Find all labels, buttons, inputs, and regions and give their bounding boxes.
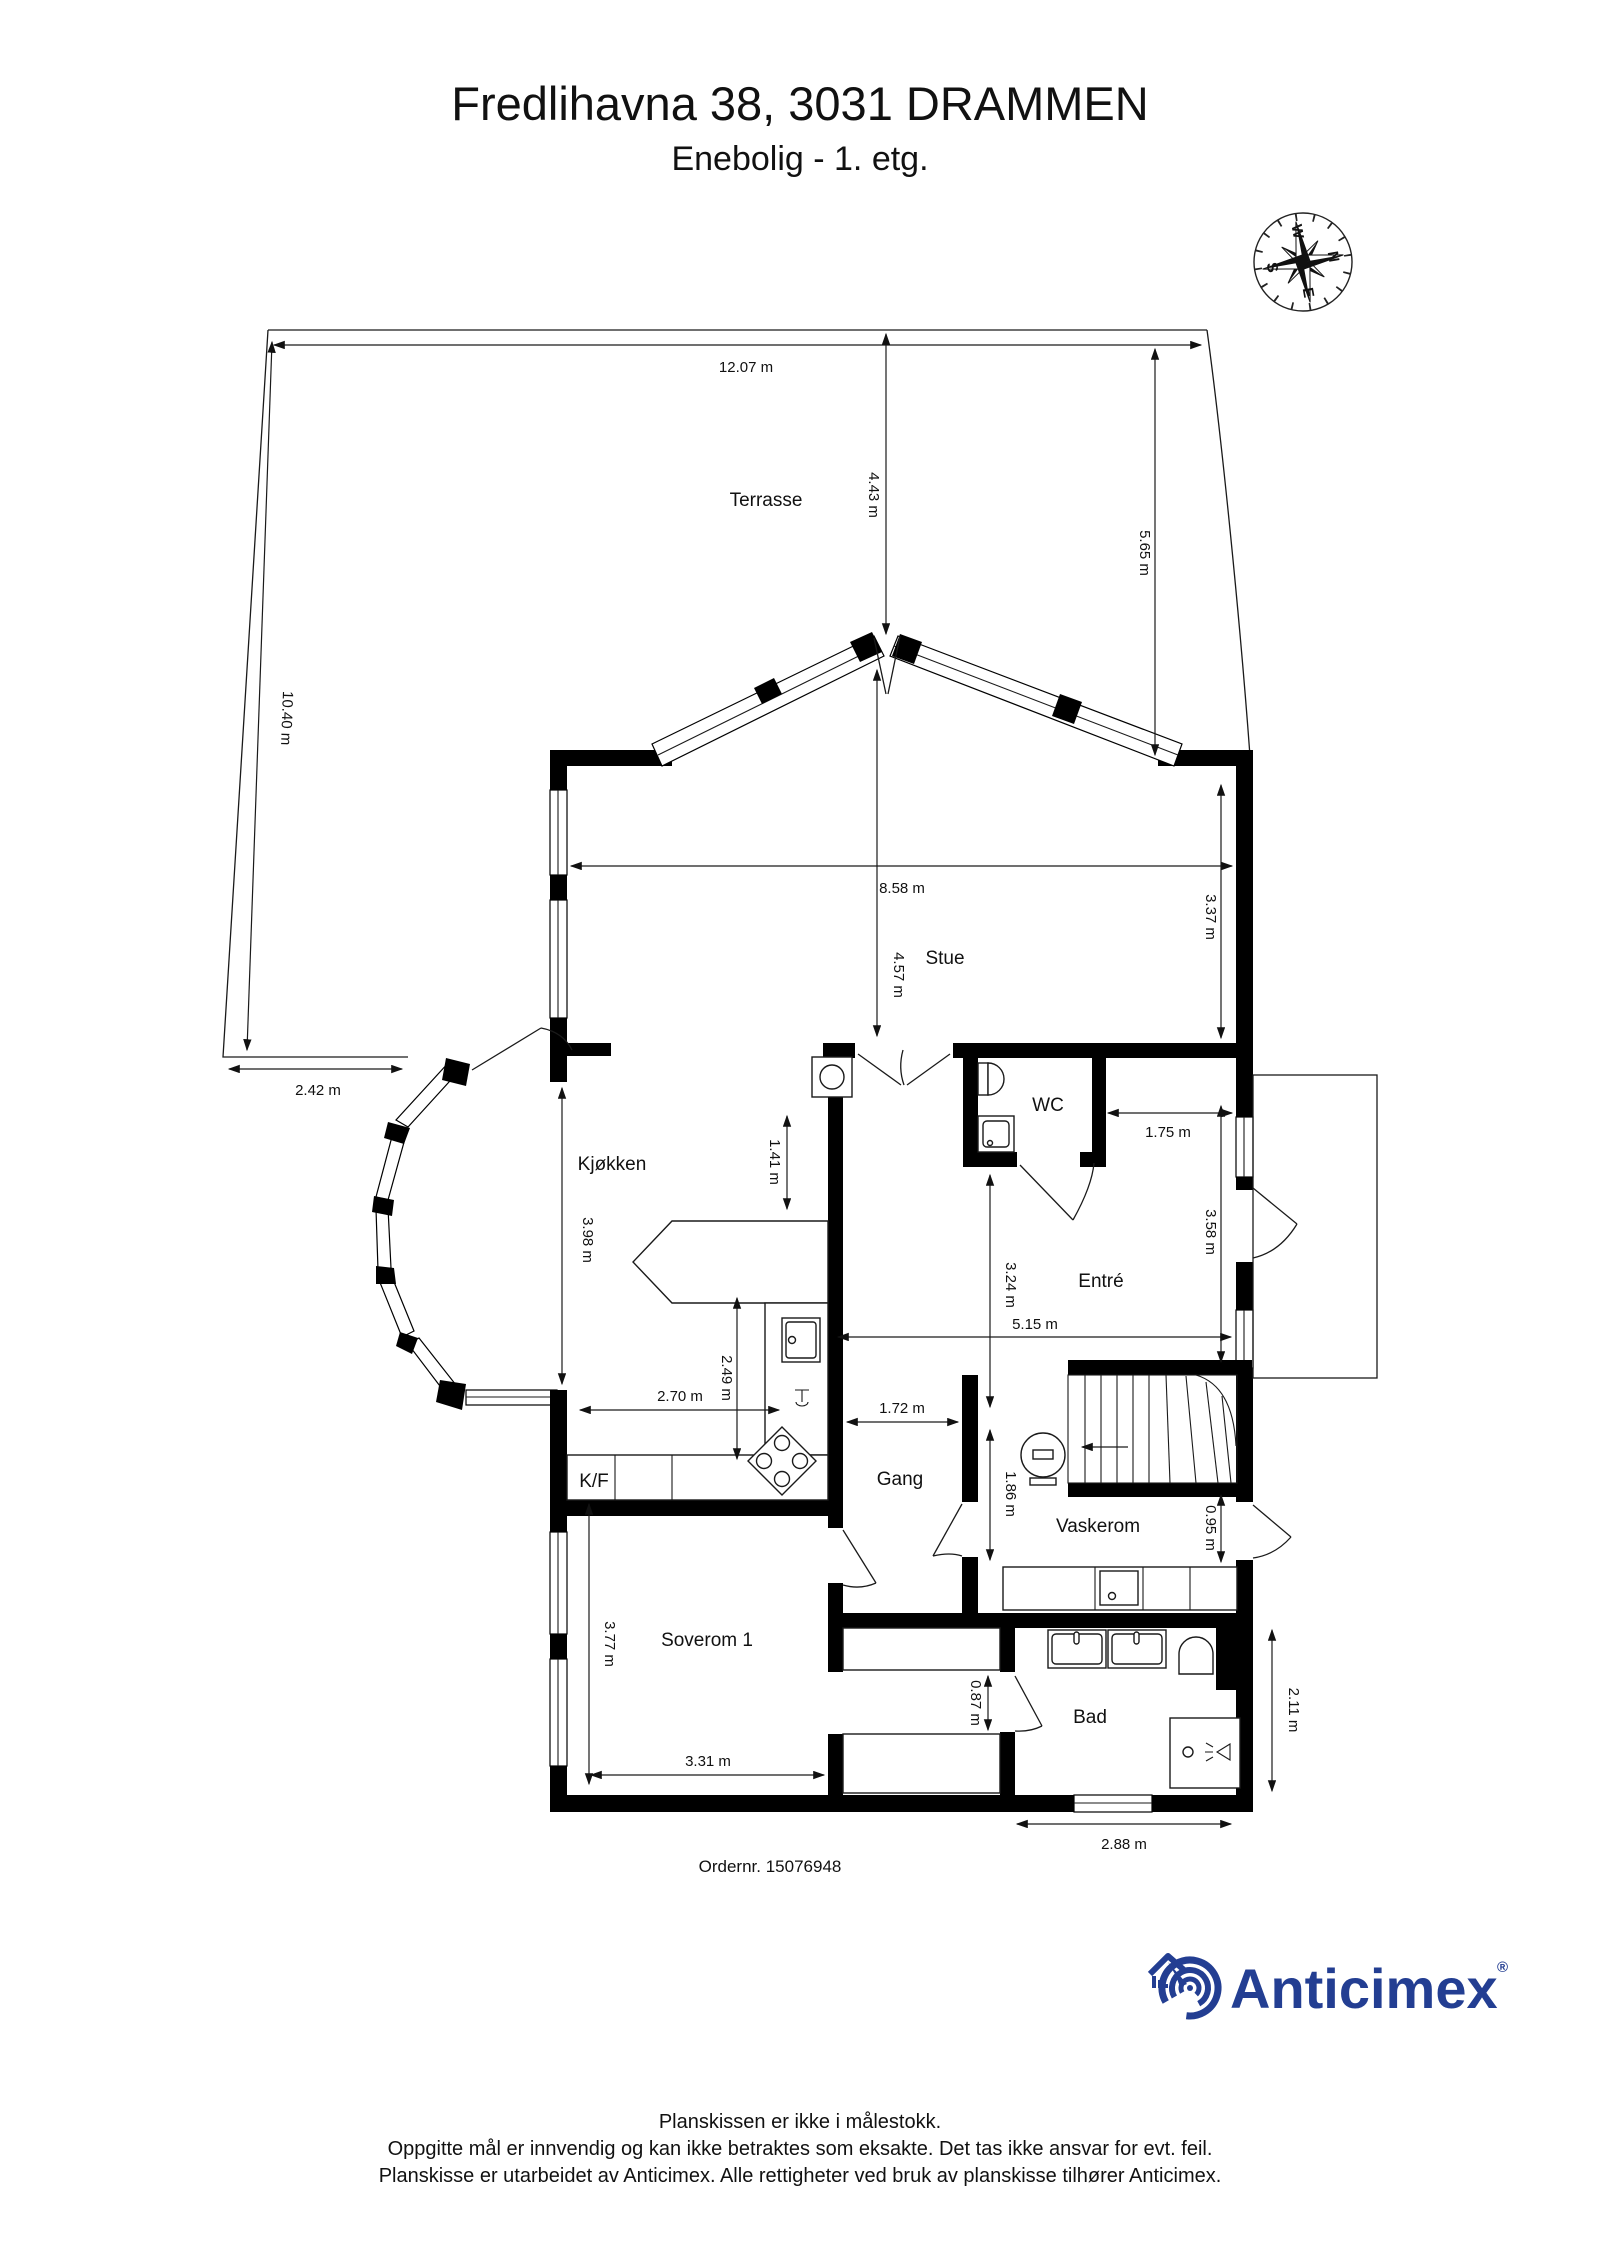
- room-label-bad: Bad: [1073, 1707, 1107, 1728]
- bad-sinks-icon: [1048, 1630, 1166, 1668]
- wc-right-wall: [1092, 1058, 1106, 1167]
- registered-mark: ®: [1497, 1959, 1508, 1976]
- dim-label: 1.72 m: [879, 1400, 925, 1417]
- bad-shower-icon: [1170, 1718, 1240, 1788]
- bad-toilet-icon: [1179, 1637, 1213, 1674]
- closet-south: [843, 1734, 1000, 1793]
- dim-label: 12.07 m: [719, 359, 773, 376]
- terrace-door-jamb-wall: [550, 1018, 567, 1082]
- kitchen-counter-sink: [765, 1303, 828, 1455]
- dim-label: 1.86 m: [1002, 1471, 1019, 1517]
- double-door-stue: [858, 1050, 950, 1085]
- kitchen-island: [633, 1221, 828, 1303]
- dim-label: 1.75 m: [1145, 1124, 1191, 1141]
- room-label-terrasse: Terrasse: [730, 490, 803, 511]
- dim-label: 2.49 m: [718, 1355, 735, 1401]
- dim-label: 3.31 m: [685, 1753, 731, 1770]
- staircase: [1068, 1375, 1237, 1483]
- room-label-wc: WC: [1032, 1095, 1064, 1116]
- dim-label: 2.11 m: [1285, 1688, 1302, 1733]
- toilet-chase-wall: [1216, 1628, 1252, 1690]
- room-label-kf: K/F: [579, 1471, 609, 1492]
- room-labels: Terrasse Stue Kjøkken WC Entré Gang Vask…: [578, 490, 1140, 1728]
- closet-north: [843, 1628, 1000, 1670]
- wc-left-wall: [963, 1058, 978, 1167]
- bay-window-left: [652, 632, 884, 766]
- room-label-kjokken: Kjøkken: [578, 1154, 647, 1175]
- compass-east-label: E: [1299, 286, 1317, 299]
- entrance-door: [1253, 1188, 1297, 1258]
- vaskerom-door: [933, 1504, 962, 1556]
- bad-door: [1015, 1676, 1042, 1731]
- vaskerom-counter: [1003, 1567, 1237, 1610]
- anticimex-swirl-icon: [1150, 1950, 1228, 2026]
- fireplace-icon: [812, 1057, 852, 1097]
- room-label-soverom1: Soverom 1: [661, 1630, 753, 1651]
- room-label-vaskerom: Vaskerom: [1056, 1516, 1140, 1537]
- entrance-porch-outline: [1253, 1075, 1377, 1378]
- footer-disclaimer: Planskissen er ikke i målestokk. Oppgitt…: [379, 2111, 1222, 2187]
- dim-label: 3.24 m: [1002, 1262, 1019, 1308]
- dim-label: 3.37 m: [1202, 894, 1219, 940]
- footer-line-3: Planskisse er utarbeidet av Anticimex. A…: [379, 2165, 1222, 2187]
- dim-label: 5.65 m: [1136, 530, 1153, 576]
- interior-walls: [550, 1043, 1252, 1795]
- terrace-outline: [223, 330, 1250, 1057]
- room-label-stue: Stue: [925, 948, 964, 969]
- dim-label: 1.41 m: [766, 1139, 783, 1185]
- compass-rose-icon: N E S W: [1246, 205, 1360, 319]
- footer-line-2: Oppgitte mål er innvendig og kan ikke be…: [388, 2138, 1213, 2160]
- footer-line-1: Planskissen er ikke i målestokk.: [659, 2111, 941, 2133]
- dim-label: 2.42 m: [295, 1082, 341, 1099]
- vaskerom-exterior-door: [1253, 1505, 1291, 1558]
- dim-label: 3.58 m: [1202, 1209, 1219, 1255]
- wc-shower-icon: [978, 1116, 1014, 1152]
- soverom-door: [843, 1530, 876, 1587]
- compass-south-label: S: [1263, 261, 1281, 274]
- dim-label: 3.77 m: [601, 1621, 618, 1667]
- dim-label: 4.43 m: [865, 472, 882, 518]
- anticimex-logo: Anticimex ®: [1150, 1950, 1508, 2026]
- dim-label: 8.58 m: [879, 880, 925, 897]
- dim-label: 4.57 m: [890, 952, 907, 998]
- page-subtitle: Enebolig - 1. etg.: [671, 140, 928, 178]
- dim-label: 5.15 m: [1012, 1316, 1058, 1333]
- dim-label: 3.98 m: [579, 1217, 596, 1263]
- wc-door: [1020, 1163, 1094, 1220]
- kitchen-bay-window: [372, 1058, 557, 1410]
- room-label-entre: Entré: [1078, 1271, 1123, 1292]
- order-number: Ordernr. 15076948: [699, 1857, 842, 1876]
- dim-label: 0.87 m: [967, 1680, 984, 1726]
- fixtures: [567, 1057, 1240, 1793]
- dim-label: 10.40 m: [277, 691, 296, 746]
- floorplan-drawing: Fredlihavna 38, 3031 DRAMMEN Enebolig - …: [0, 0, 1600, 2263]
- room-label-gang: Gang: [877, 1469, 923, 1490]
- washing-machine-icon: [1021, 1433, 1065, 1485]
- compass-west-label: W: [1288, 223, 1307, 241]
- compass-north-label: N: [1324, 250, 1343, 264]
- anticimex-wordmark: Anticimex: [1230, 1957, 1498, 2020]
- bay-window-right: [890, 634, 1182, 766]
- floorplan-page: Fredlihavna 38, 3031 DRAMMEN Enebolig - …: [0, 0, 1600, 2263]
- dim-label: 0.95 m: [1202, 1505, 1219, 1551]
- wc-toilet-icon: [978, 1063, 1004, 1095]
- dim-label: 2.88 m: [1101, 1836, 1147, 1853]
- dim-label: 2.70 m: [657, 1388, 703, 1405]
- page-title: Fredlihavna 38, 3031 DRAMMEN: [451, 77, 1148, 130]
